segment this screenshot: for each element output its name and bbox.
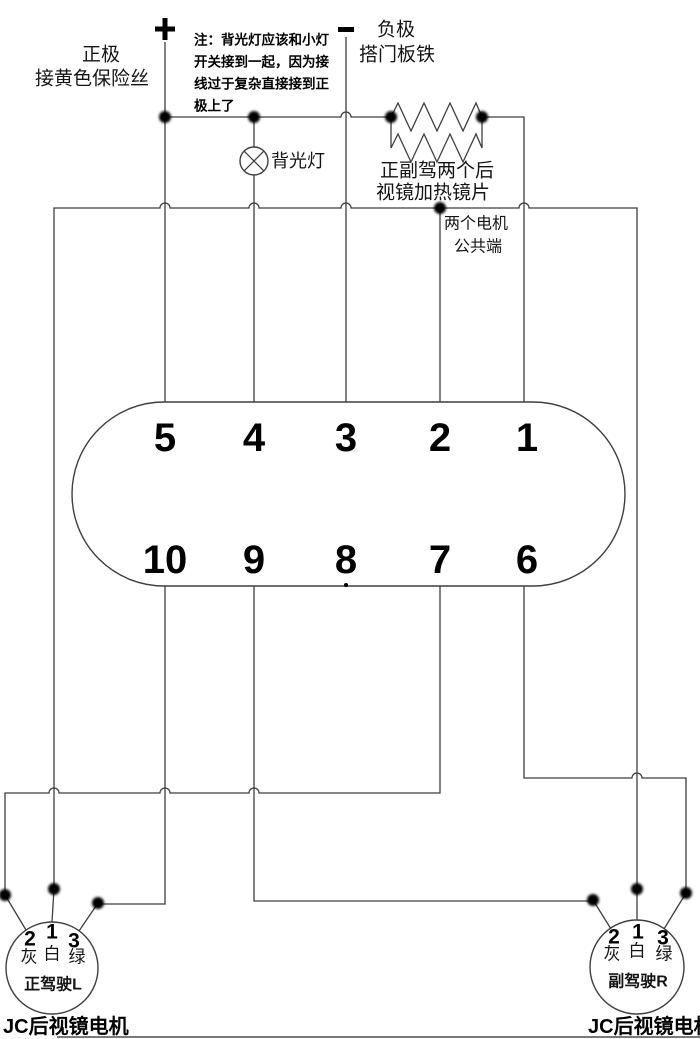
pin-label-4: 4 <box>243 416 266 460</box>
resistor-icon-top <box>391 103 482 131</box>
heater-label-line1: 正副驾两个后 <box>380 160 494 182</box>
right-motor-wire-green: 绿 <box>656 945 673 964</box>
lamp-icon <box>240 147 268 175</box>
note-line4: 极上了 <box>194 98 235 114</box>
components <box>6 18 700 1037</box>
junction-dot <box>248 111 260 123</box>
right-motor-terminal-1: 1 <box>632 921 644 944</box>
left-motor-labels: 2 1 3 灰 白 绿 正驾驶L JC后视镜电机 <box>3 921 129 1039</box>
negative-label-line2: 搭门板铁 <box>359 44 435 66</box>
right-motor-wire-gray: 灰 <box>604 945 621 964</box>
wires <box>5 37 686 931</box>
junction-dot <box>631 883 643 895</box>
junction-dot <box>385 111 397 123</box>
pin-label-10: 10 <box>143 538 188 582</box>
connector-bottom-pin-labels: 10 9 8 7 6 <box>143 538 538 582</box>
motor-common-label-line2: 公共端 <box>454 238 502 256</box>
pin-label-2: 2 <box>429 416 451 460</box>
left-motor-caption: JC后视镜电机 <box>3 1014 129 1038</box>
pin-label-6: 6 <box>516 538 538 582</box>
labels: 正极 接黄色保险丝 负极 搭门板铁 注：背光灯应该和小灯 开关接到一起，因为接 … <box>3 19 700 1039</box>
motor-common-label-line1: 两个电机 <box>444 215 508 233</box>
junction-dot <box>476 111 488 123</box>
minus-icon <box>338 27 354 32</box>
junction-dot <box>587 894 599 906</box>
right-motor-name: 副驾驶R <box>608 972 668 991</box>
left-motor-terminal-1: 1 <box>46 921 58 944</box>
pin8-stub <box>344 583 348 587</box>
right-motor-wire-white: 白 <box>629 942 646 961</box>
negative-label-line1: 负极 <box>377 19 415 41</box>
right-motor-caption: JC后视镜电机 <box>588 1014 700 1038</box>
junction-dot <box>92 897 104 909</box>
stub-left-gray <box>5 895 26 930</box>
note-line1: 注：背光灯应该和小灯 <box>194 32 329 48</box>
heater-label-line2: 视镜加热镜片 <box>376 182 490 204</box>
junction-dot <box>0 889 11 901</box>
pin-label-3: 3 <box>335 416 357 460</box>
junction-dot <box>48 883 60 895</box>
junction-dot <box>159 111 171 123</box>
left-motor-name: 正驾驶L <box>24 975 82 994</box>
wiring-diagram: 正极 接黄色保险丝 负极 搭门板铁 注：背光灯应该和小灯 开关接到一起，因为接 … <box>0 0 700 1039</box>
left-motor-wire-gray: 灰 <box>21 948 38 967</box>
positive-label-line2: 接黄色保险丝 <box>35 68 149 90</box>
positive-label-line1: 正极 <box>82 44 120 66</box>
wire-pin10-to-left-green <box>100 586 165 904</box>
left-motor-wire-white: 白 <box>44 945 61 964</box>
stub-right-green <box>664 893 686 929</box>
junction-dot <box>680 887 692 899</box>
wire-pin6-to-right-green <box>524 586 686 893</box>
pin-label-5: 5 <box>154 416 176 460</box>
wire-pin9-to-right-gray <box>254 586 593 901</box>
plus-icon <box>155 18 175 40</box>
backlight-label: 背光灯 <box>271 151 325 171</box>
left-motor-wire-green: 绿 <box>69 948 86 967</box>
pin-label-8: 8 <box>335 538 357 582</box>
junction-dot <box>434 202 446 214</box>
right-motor-labels: 2 1 3 灰 白 绿 副驾驶R JC后视镜电机 <box>588 921 700 1039</box>
wire-pin7-to-left-gray <box>5 586 440 895</box>
resistor-icon-bottom <box>391 117 482 162</box>
pin-label-7: 7 <box>429 538 451 582</box>
pin-label-9: 9 <box>243 538 265 582</box>
connector-top-pin-labels: 5 4 3 2 1 <box>154 416 538 460</box>
note-line2: 开关接到一起，因为接 <box>194 54 329 70</box>
note-line3: 线过于复杂直接接到正 <box>194 76 329 92</box>
pin-label-1: 1 <box>516 416 538 460</box>
